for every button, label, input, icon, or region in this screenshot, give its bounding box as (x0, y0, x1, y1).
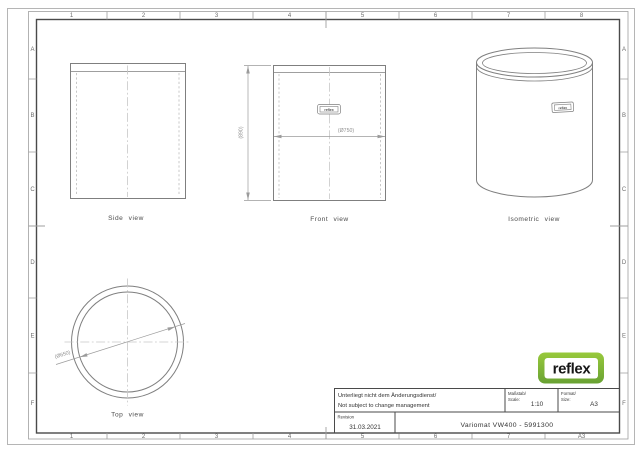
front-height-dimension: (890) (239, 66, 272, 201)
grid-label-top-1: 1 (70, 13, 74, 19)
format-label-en: Size: (561, 397, 571, 402)
top-dim-text: (Ø650) (54, 350, 71, 361)
grid-label-left-B: B (30, 113, 34, 119)
grid-left-labels: ABCDEF (30, 47, 35, 407)
drawing-frame (37, 20, 620, 434)
revision-label: Revision (338, 415, 355, 420)
front-view-label: Front view (310, 216, 348, 223)
front-view-nameplate: reflex (318, 105, 341, 115)
format-value: A3 (590, 401, 598, 408)
isometric-view: reflex Isometric view (477, 48, 593, 223)
front-view: reflex (890) (Ø750) Front view (239, 66, 386, 224)
side-view-label: Side view (108, 215, 144, 222)
height-arrow-top (246, 66, 250, 74)
note-german: Unterliegt nicht dem Änderungsdienst/ (338, 392, 437, 399)
grid-label-top-7: 7 (507, 13, 511, 19)
grid-top-labels: 12345678 (70, 13, 584, 19)
grid-label-right-B: B (622, 113, 626, 119)
grid-label-top-2: 2 (142, 13, 146, 19)
scale-value: 1:10 (531, 401, 544, 408)
grid-label-top-3: 3 (215, 13, 219, 19)
nameplate-text: reflex (558, 106, 567, 110)
grid-label-top-6: 6 (434, 13, 438, 19)
diameter-arrow-right (378, 135, 386, 139)
scale-label-en: Scale: (508, 397, 520, 402)
drawing-title: Variomat VW400 - 5991300 (461, 422, 554, 429)
grid-label-left-C: C (30, 187, 35, 193)
grid-label-right-C: C (622, 187, 627, 193)
diameter-arrow-left (274, 135, 282, 139)
note-english: Not subject to change management (338, 403, 430, 409)
grid-row-ticks (29, 79, 629, 373)
side-view: Side view (71, 64, 186, 223)
grid-right-labels: ABCDEF (622, 47, 627, 407)
top-dim-line (56, 324, 185, 365)
top-arrow-lower (80, 353, 88, 357)
isometric-nameplate: reflex (552, 102, 574, 113)
grid-label-left-D: D (30, 260, 35, 266)
grid-label-top-8: 8 (580, 13, 584, 19)
grid-label-right-A: A (622, 47, 626, 53)
grid-label-left-E: E (30, 334, 34, 340)
format-label-de: Format/ (561, 391, 577, 396)
grid-label-top-5: 5 (361, 13, 365, 19)
grid-label-right-E: E (622, 334, 626, 340)
height-arrow-bottom (246, 193, 250, 201)
iso-rim-inner (483, 53, 587, 74)
grid-label-right-D: D (622, 260, 627, 266)
diameter-dim-text: (Ø750) (338, 128, 354, 134)
grid-label-top-4: 4 (288, 13, 292, 19)
scale-label-de: Maßstab/ (508, 391, 527, 396)
logo-wordmark: reflex (553, 361, 592, 378)
revision-value: 31.03.2021 (349, 424, 381, 431)
grid-label-bottom-A3: A3 (578, 434, 586, 440)
grid-label-left-A: A (30, 47, 34, 53)
iso-cylinder-outline (477, 63, 593, 198)
top-view-label: Top view (111, 412, 144, 419)
top-view: (Ø650) Top view (54, 279, 190, 419)
reflex-logo: reflex (538, 353, 604, 384)
drawing-canvas: 12345678 1234567A3 ABCDEF ABCDEF Side vi… (0, 0, 640, 452)
height-dim-text: (890) (239, 126, 245, 138)
nameplate-text: reflex (324, 108, 333, 112)
top-arrow-upper (167, 327, 175, 331)
grid-label-left-F: F (31, 401, 35, 407)
grid-label-right-F: F (622, 401, 626, 407)
side-view-body (71, 64, 186, 199)
title-block: Unterliegt nicht dem Änderungsdienst/ No… (335, 389, 620, 434)
drawing-sheet: 12345678 1234567A3 ABCDEF ABCDEF Side vi… (0, 0, 640, 452)
isometric-view-label: Isometric view (508, 216, 560, 223)
